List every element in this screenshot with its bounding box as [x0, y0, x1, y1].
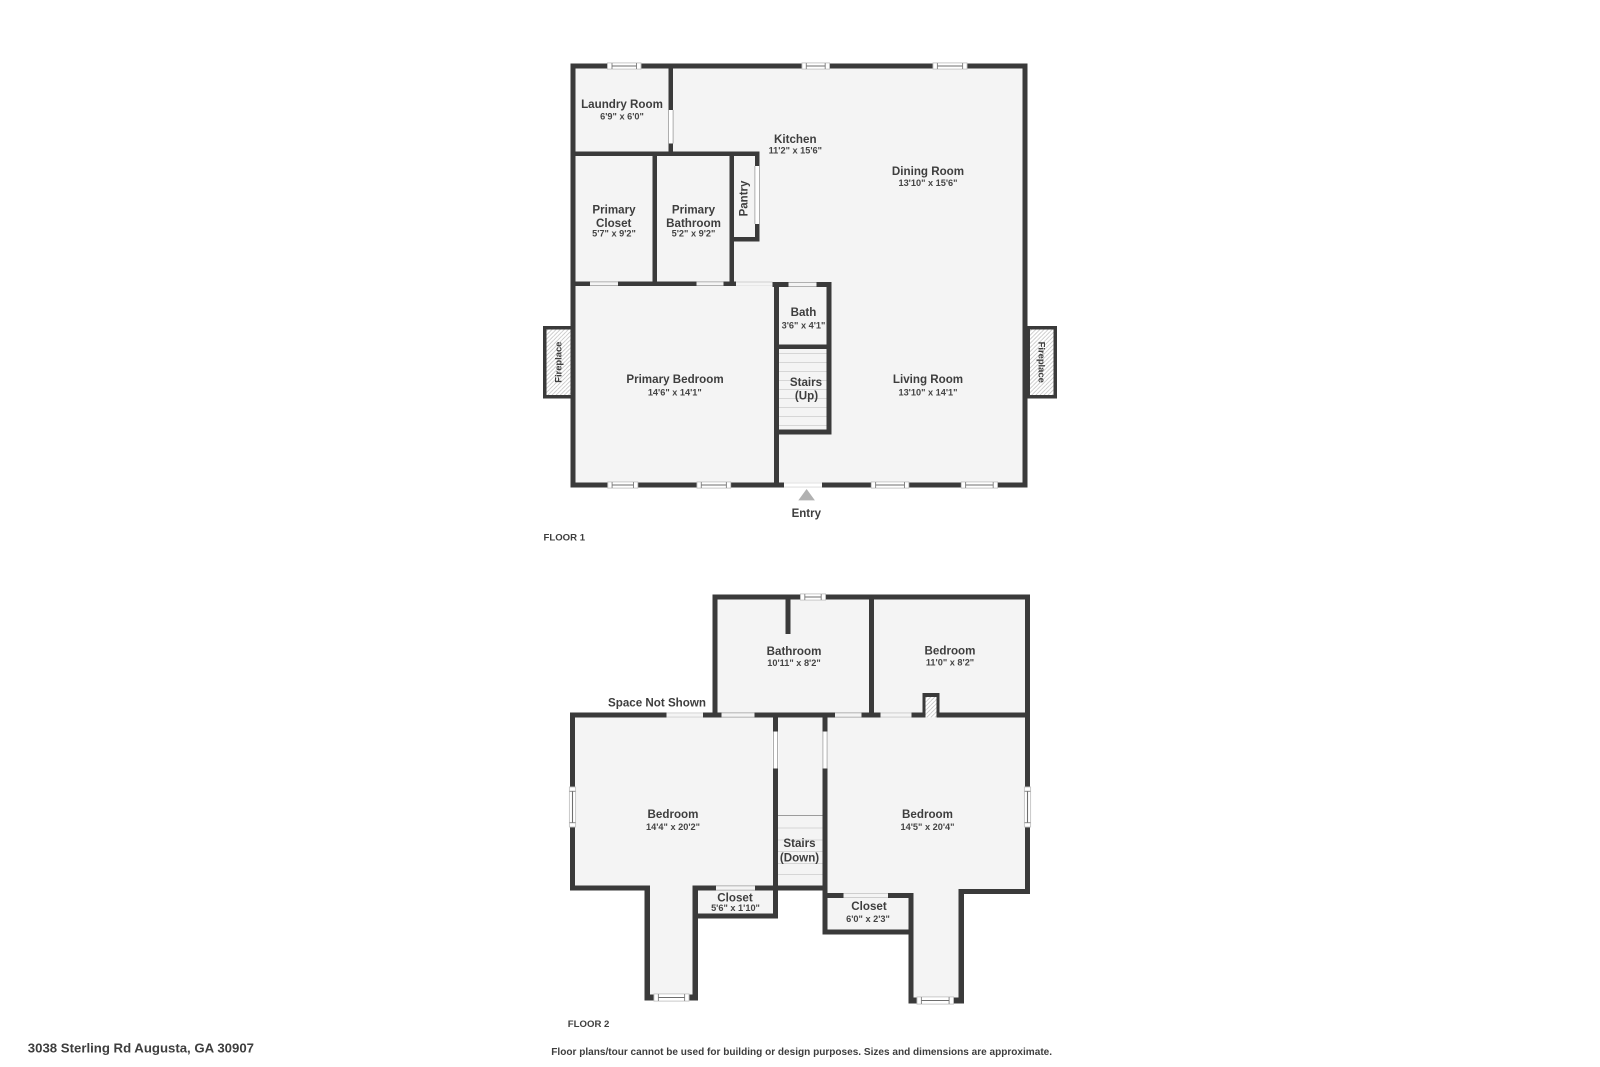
- svg-text:Pantry: Pantry: [739, 180, 751, 216]
- svg-text:Dining Room: Dining Room: [892, 165, 964, 178]
- svg-text:Bath: Bath: [791, 306, 817, 319]
- svg-text:Bedroom: Bedroom: [648, 808, 699, 821]
- svg-text:Laundry Room: Laundry Room: [581, 98, 663, 111]
- svg-text:3'6" x 4'1": 3'6" x 4'1": [782, 320, 826, 330]
- svg-text:14'6" x 14'1": 14'6" x 14'1": [648, 387, 702, 397]
- svg-text:Floor plans/tour cannot be use: Floor plans/tour cannot be used for buil…: [551, 1047, 1052, 1058]
- svg-text:5'7" x 9'2": 5'7" x 9'2": [592, 228, 636, 238]
- svg-text:Bathroom: Bathroom: [767, 645, 822, 658]
- svg-text:Kitchen: Kitchen: [774, 133, 817, 146]
- svg-text:Fireplace: Fireplace: [1037, 342, 1048, 383]
- svg-text:Living Room: Living Room: [893, 373, 963, 386]
- svg-text:11'2" x 15'6": 11'2" x 15'6": [769, 146, 822, 156]
- svg-text:6'0" x 2'3": 6'0" x 2'3": [846, 914, 890, 924]
- svg-text:14'4" x 20'2": 14'4" x 20'2": [646, 822, 700, 832]
- svg-text:Primary: Primary: [592, 203, 636, 216]
- svg-text:Primary Bedroom: Primary Bedroom: [626, 373, 723, 386]
- svg-text:(Down): (Down): [780, 851, 819, 864]
- svg-text:Bedroom: Bedroom: [902, 808, 953, 821]
- svg-text:5'6" x 1'10": 5'6" x 1'10": [711, 903, 760, 913]
- svg-text:13'10" x 15'6": 13'10" x 15'6": [898, 178, 957, 188]
- svg-text:13'10" x 14'1": 13'10" x 14'1": [898, 387, 957, 397]
- svg-text:6'9" x 6'0": 6'9" x 6'0": [600, 111, 644, 121]
- svg-text:Entry: Entry: [792, 508, 822, 520]
- svg-text:(Up): (Up): [795, 390, 818, 403]
- svg-text:3038 Sterling Rd Augusta, GA 3: 3038 Sterling Rd Augusta, GA 30907: [28, 1041, 254, 1056]
- svg-text:10'11" x 8'2": 10'11" x 8'2": [767, 658, 820, 668]
- svg-text:14'5" x 20'4": 14'5" x 20'4": [901, 822, 955, 832]
- svg-text:Primary: Primary: [672, 203, 716, 216]
- svg-text:FLOOR 1: FLOOR 1: [544, 532, 586, 543]
- svg-text:Fireplace: Fireplace: [553, 342, 564, 383]
- svg-text:FLOOR 2: FLOOR 2: [568, 1019, 610, 1030]
- svg-text:Bedroom: Bedroom: [925, 644, 976, 657]
- svg-text:Closet: Closet: [851, 900, 887, 913]
- svg-text:11'0" x 8'2": 11'0" x 8'2": [926, 658, 974, 668]
- svg-text:5'2" x 9'2": 5'2" x 9'2": [672, 228, 716, 238]
- svg-text:Stairs: Stairs: [790, 376, 822, 389]
- svg-text:Stairs: Stairs: [783, 837, 815, 850]
- svg-text:Space Not Shown: Space Not Shown: [608, 697, 706, 710]
